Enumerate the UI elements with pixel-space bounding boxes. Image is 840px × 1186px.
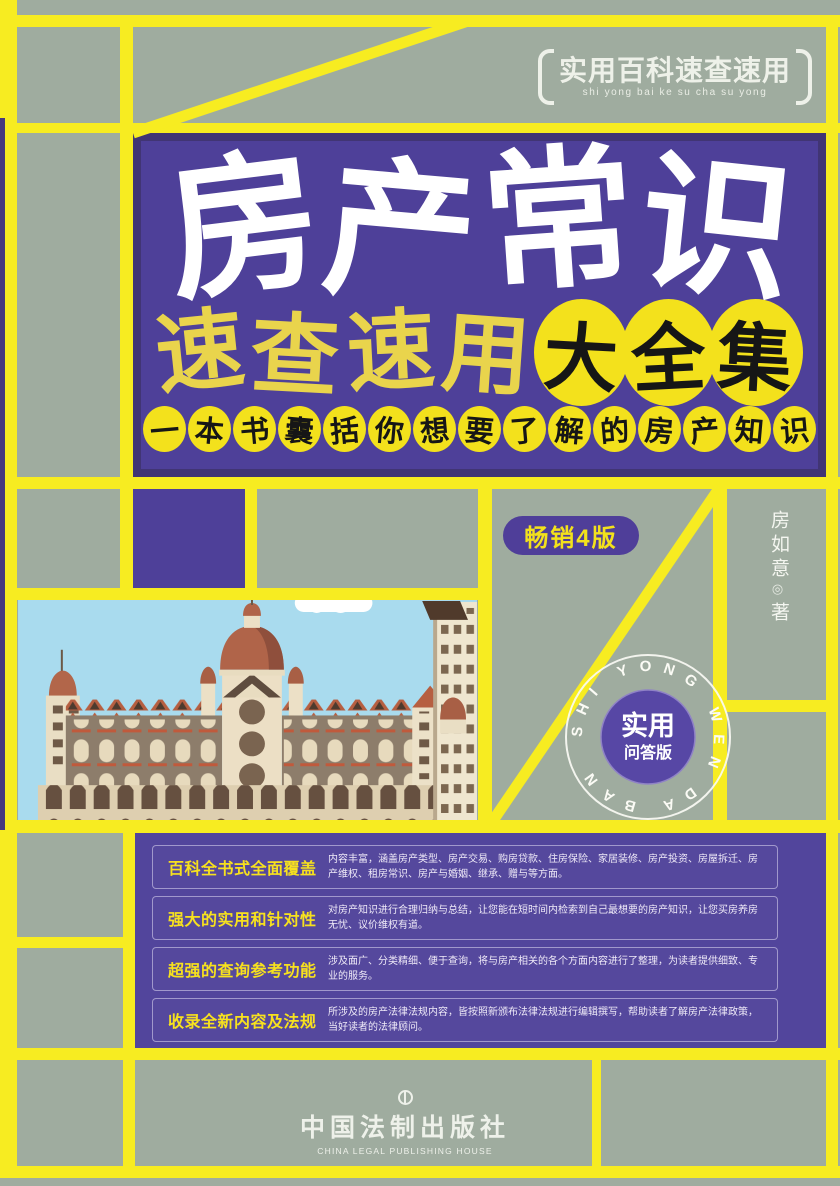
tagline: 一 本 书 囊 括 你 想 要 了 解 的 房 产 知 识	[141, 406, 818, 452]
tagline-circle: 识	[773, 406, 816, 452]
edition-badge-label: 畅销4版	[524, 518, 617, 553]
series-pinyin: shi yong bai ke su cha su yong	[559, 87, 791, 98]
seal-stamp: SHI YONG WEN DA BAN 实用 问答版	[562, 651, 734, 823]
seal-line2: 问答版	[624, 743, 672, 762]
tagline-circle: 了	[503, 406, 546, 452]
subtitle-circle: 大	[534, 299, 629, 406]
grid-line	[592, 1048, 601, 1178]
feature-panel: 百科全书式全面覆盖 内容丰富，涵盖房产类型、房产交易、购房贷款、住房保险、家居装…	[133, 833, 826, 1048]
feature-description: 对房产知识进行合理归纳与总结，让您能在短时间内检索到自己最想要的房产知识，让您买…	[326, 900, 777, 936]
series-badge: 实用百科速查速用 shi yong bai ke su cha su yong	[532, 42, 818, 112]
grid-line	[727, 700, 826, 712]
subtitle-circle: 全	[621, 299, 716, 406]
feature-description: 内容丰富，涵盖房产类型、房产交易、购房贷款、住房保险、家居装修、房产投资、房屋拆…	[326, 849, 777, 885]
series-title: 实用百科速查速用	[559, 56, 791, 87]
bracket-right-icon	[796, 49, 812, 105]
main-title: 房 产 常 识	[141, 141, 818, 302]
tagline-circle: 你	[368, 406, 411, 452]
title-char: 产	[317, 147, 482, 321]
grid-line	[123, 833, 135, 1178]
tagline-circle: 产	[683, 406, 726, 452]
title-char: 常	[477, 136, 640, 307]
edition-badge: 畅销4版	[503, 516, 639, 555]
tagline-circle: 要	[458, 406, 501, 452]
cloud	[295, 600, 373, 613]
author: 房如意◎著	[758, 510, 792, 660]
publisher-name-cn: 中国法制出版社	[240, 1108, 570, 1144]
tagline-circle: 房	[638, 406, 681, 452]
subtitle-row: 速 查 速 用 大 全 集	[141, 299, 818, 406]
feature-row: 百科全书式全面覆盖 内容丰富，涵盖房产类型、房产交易、购房贷款、住房保险、家居装…	[152, 845, 778, 889]
seal-line1: 实用	[621, 710, 675, 741]
tagline-circle: 本	[188, 406, 231, 452]
subtitle-char: 查	[249, 306, 342, 407]
book-cover: 房 产 常 识 速 查 速 用 大 全 集 一 本 书 囊 括 你 想 要 了	[0, 0, 840, 1186]
tagline-circle: 括	[323, 406, 366, 452]
grid-line	[0, 937, 135, 948]
author-role: 著	[768, 602, 789, 626]
feature-row: 超强的查询参考功能 涉及面广、分类精细、便于查询，将与房产相关的各个方面内容进行…	[152, 947, 778, 991]
subtitle-char: 速	[152, 300, 250, 405]
tagline-circle: 想	[413, 406, 456, 452]
title-block: 房 产 常 识 速 查 速 用 大 全 集 一 本 书 囊 括 你 想 要 了	[133, 133, 826, 477]
decor-purple-sliver	[0, 118, 5, 830]
feature-label: 收录全新内容及法规	[153, 1008, 326, 1032]
tagline-circle: 知	[728, 406, 771, 452]
tagline-circle: 书	[233, 406, 276, 452]
decor-purple-cell	[133, 489, 245, 588]
bracket-left-icon	[538, 49, 554, 105]
feature-description: 所涉及的房产法律法规内容，皆按照新颁布法律法规进行编辑撰写，帮助读者了解房产法律…	[326, 1002, 777, 1038]
grid-line	[245, 477, 257, 600]
subtitle-char: 速	[344, 302, 437, 403]
subtitle-char: 用	[438, 304, 533, 407]
tagline-circle: 一	[143, 406, 186, 452]
feature-label: 百科全书式全面覆盖	[153, 855, 326, 879]
grid-line	[120, 15, 133, 600]
author-separator: ◎	[771, 582, 786, 602]
grid-line	[826, 15, 838, 1178]
title-char: 房	[158, 138, 329, 316]
feature-description: 涉及面广、分类精细、便于查询，将与房产相关的各个方面内容进行了整理，为读者提供细…	[326, 951, 777, 987]
tagline-circle: 的	[593, 406, 636, 452]
publisher-name-en: CHINA LEGAL PUBLISHING HOUSE	[240, 1146, 570, 1156]
tagline-circle: 囊	[278, 406, 321, 452]
subtitle-plain: 速 查 速 用	[156, 304, 529, 401]
building-illustration	[17, 600, 478, 820]
tagline-circle: 解	[548, 406, 591, 452]
subtitle-circle: 集	[708, 299, 803, 406]
publisher: 中国法制出版社 CHINA LEGAL PUBLISHING HOUSE	[240, 1090, 570, 1156]
feature-row: 收录全新内容及法规 所涉及的房产法律法规内容，皆按照新颁布法律法规进行编辑撰写，…	[152, 998, 778, 1042]
feature-label: 超强的查询参考功能	[153, 957, 326, 981]
palace-scene	[17, 600, 478, 820]
feature-row: 强大的实用和针对性 对房产知识进行合理归纳与总结，让您能在短时间内检索到自己最想…	[152, 896, 778, 940]
title-char: 识	[632, 141, 800, 317]
author-name: 房如意	[768, 510, 789, 582]
grid-line	[478, 477, 492, 833]
feature-label: 强大的实用和针对性	[153, 906, 326, 930]
publisher-logo-icon	[398, 1090, 413, 1105]
